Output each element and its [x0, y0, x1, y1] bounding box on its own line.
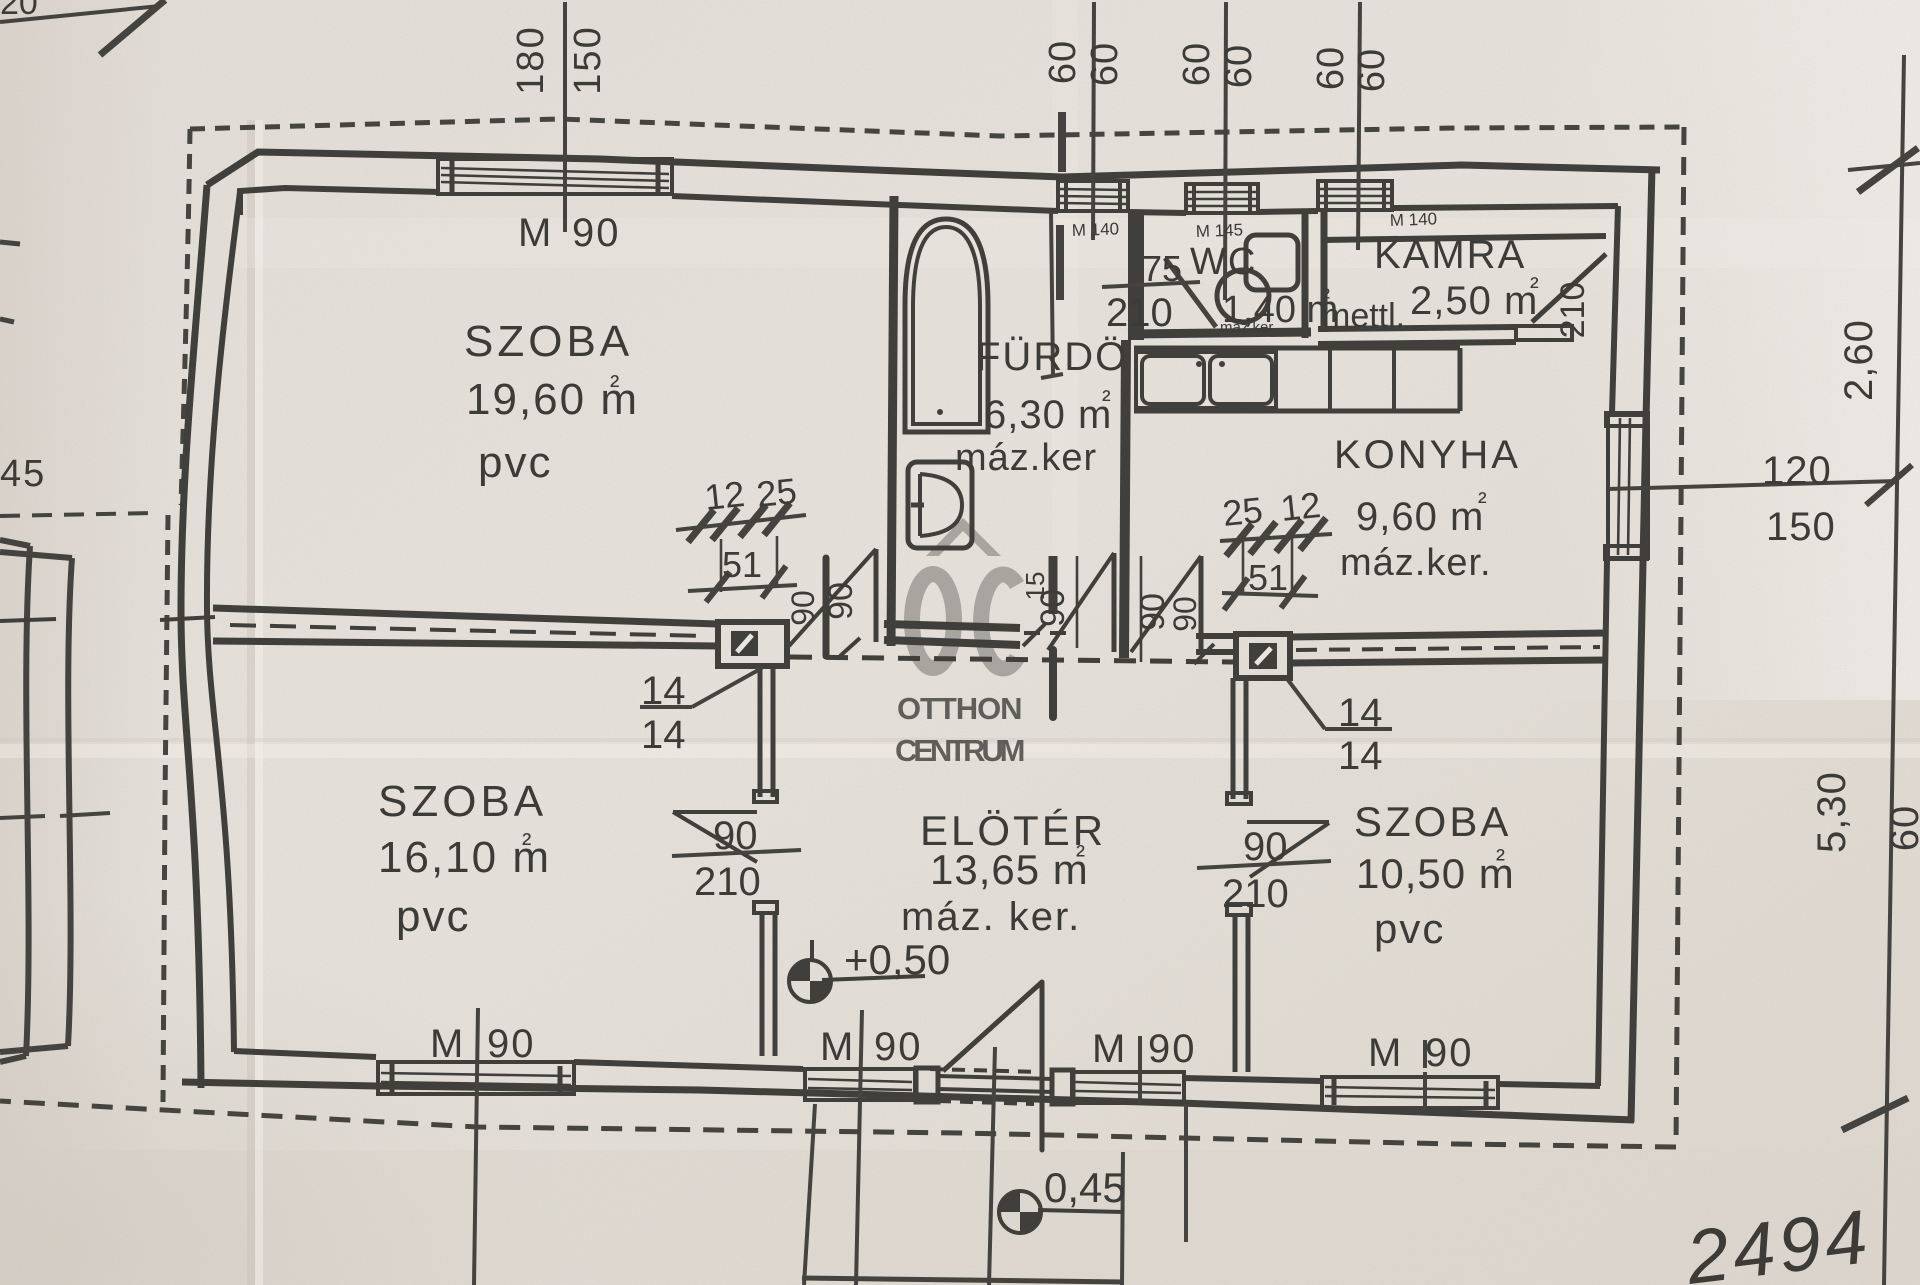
- svg-text:90: 90: [1167, 596, 1203, 632]
- svg-text:WC: WC: [1190, 241, 1257, 283]
- svg-text:M: M: [820, 1025, 855, 1069]
- svg-text:12: 12: [1279, 484, 1323, 529]
- svg-text:10,50 m: 10,50 m: [1356, 850, 1515, 897]
- svg-text:90: 90: [1425, 1031, 1474, 1075]
- svg-text:60: 60: [1042, 40, 1084, 84]
- svg-text:5,30: 5,30: [1810, 771, 1854, 853]
- svg-text:14: 14: [641, 669, 686, 713]
- svg-text:6,30 m: 6,30 m: [984, 393, 1112, 437]
- svg-text:60: 60: [1084, 42, 1126, 86]
- svg-text:60: 60: [1351, 48, 1393, 92]
- svg-text:M: M: [430, 1022, 465, 1066]
- svg-text:M 140: M 140: [1389, 209, 1437, 230]
- svg-text:OTTHON: OTTHON: [897, 691, 1023, 726]
- svg-text:90: 90: [874, 1025, 923, 1069]
- svg-text:60: 60: [1176, 42, 1218, 86]
- svg-text:SZOBA: SZOBA: [378, 777, 547, 826]
- svg-text:25: 25: [1221, 489, 1265, 534]
- svg-text:90: 90: [1243, 825, 1288, 869]
- svg-text:25: 25: [755, 470, 799, 515]
- svg-text:60: 60: [1883, 805, 1920, 852]
- svg-text:pvc: pvc: [396, 892, 470, 941]
- svg-text:M 145: M 145: [1195, 220, 1243, 241]
- svg-text:pvc: pvc: [478, 438, 552, 487]
- svg-text:²: ²: [610, 370, 619, 401]
- svg-text:90: 90: [713, 814, 758, 858]
- svg-text:2,60: 2,60: [1837, 319, 1881, 401]
- svg-text:KONYHA: KONYHA: [1334, 433, 1521, 477]
- svg-text:SZOBA: SZOBA: [464, 317, 633, 366]
- svg-text:210: 210: [1106, 291, 1173, 335]
- svg-text:máz.ker: máz.ker: [1220, 319, 1273, 336]
- svg-text:KAMRA: KAMRA: [1374, 233, 1526, 277]
- svg-text:M 140: M 140: [1071, 219, 1119, 240]
- svg-text:45: 45: [0, 453, 46, 495]
- svg-text:14: 14: [641, 713, 686, 757]
- svg-text:9,60 m: 9,60 m: [1356, 495, 1484, 539]
- svg-text:210: 210: [1554, 282, 1592, 339]
- svg-text:150: 150: [1766, 505, 1836, 549]
- svg-text:90: 90: [487, 1022, 536, 1066]
- svg-text:2,50 m: 2,50 m: [1410, 279, 1538, 323]
- svg-text:20: 20: [0, 0, 38, 22]
- svg-text:14: 14: [1338, 691, 1383, 735]
- svg-text:M: M: [518, 211, 553, 255]
- svg-text:+0,50: +0,50: [844, 936, 950, 983]
- svg-text:²: ²: [1496, 844, 1505, 874]
- svg-text:14: 14: [1338, 734, 1383, 778]
- svg-text:CENTRUM: CENTRUM: [895, 733, 1026, 768]
- svg-text:²: ²: [1478, 486, 1487, 516]
- svg-text:90: 90: [822, 582, 860, 620]
- svg-text:150: 150: [567, 25, 609, 94]
- svg-text:²: ²: [1102, 384, 1111, 414]
- svg-text:180: 180: [510, 25, 552, 94]
- svg-text:60: 60: [1218, 44, 1260, 88]
- svg-text:51: 51: [1248, 557, 1288, 598]
- svg-text:SZOBA: SZOBA: [1354, 798, 1511, 845]
- svg-text:120: 120: [1762, 449, 1832, 493]
- svg-text:60: 60: [1310, 46, 1352, 90]
- svg-text:máz. ker.: máz. ker.: [901, 895, 1081, 939]
- svg-text:210: 210: [1222, 872, 1289, 916]
- svg-text:90: 90: [785, 590, 821, 626]
- svg-text:12: 12: [703, 473, 747, 518]
- svg-text:FÜRDÖ: FÜRDÖ: [976, 335, 1128, 379]
- svg-text:90: 90: [1148, 1027, 1197, 1071]
- svg-text:0,45: 0,45: [1044, 1164, 1126, 1211]
- svg-text:M: M: [1368, 1031, 1403, 1075]
- svg-text:51: 51: [722, 544, 762, 585]
- svg-text:pvc: pvc: [1374, 905, 1445, 952]
- svg-text:90: 90: [572, 211, 621, 255]
- svg-text:²: ²: [522, 828, 531, 859]
- svg-text:13,65 m: 13,65 m: [930, 846, 1089, 893]
- svg-text:máz.ker: máz.ker: [955, 437, 1097, 479]
- svg-text:M: M: [1092, 1027, 1127, 1071]
- svg-text:²: ²: [1530, 271, 1539, 301]
- svg-text:máz.ker.: máz.ker.: [1340, 542, 1492, 584]
- svg-text:15: 15: [1020, 572, 1050, 601]
- svg-text:²: ²: [1076, 840, 1085, 870]
- svg-text:mettl.: mettl.: [1322, 297, 1405, 335]
- svg-text:210: 210: [694, 860, 761, 904]
- svg-text:75: 75: [1142, 248, 1182, 289]
